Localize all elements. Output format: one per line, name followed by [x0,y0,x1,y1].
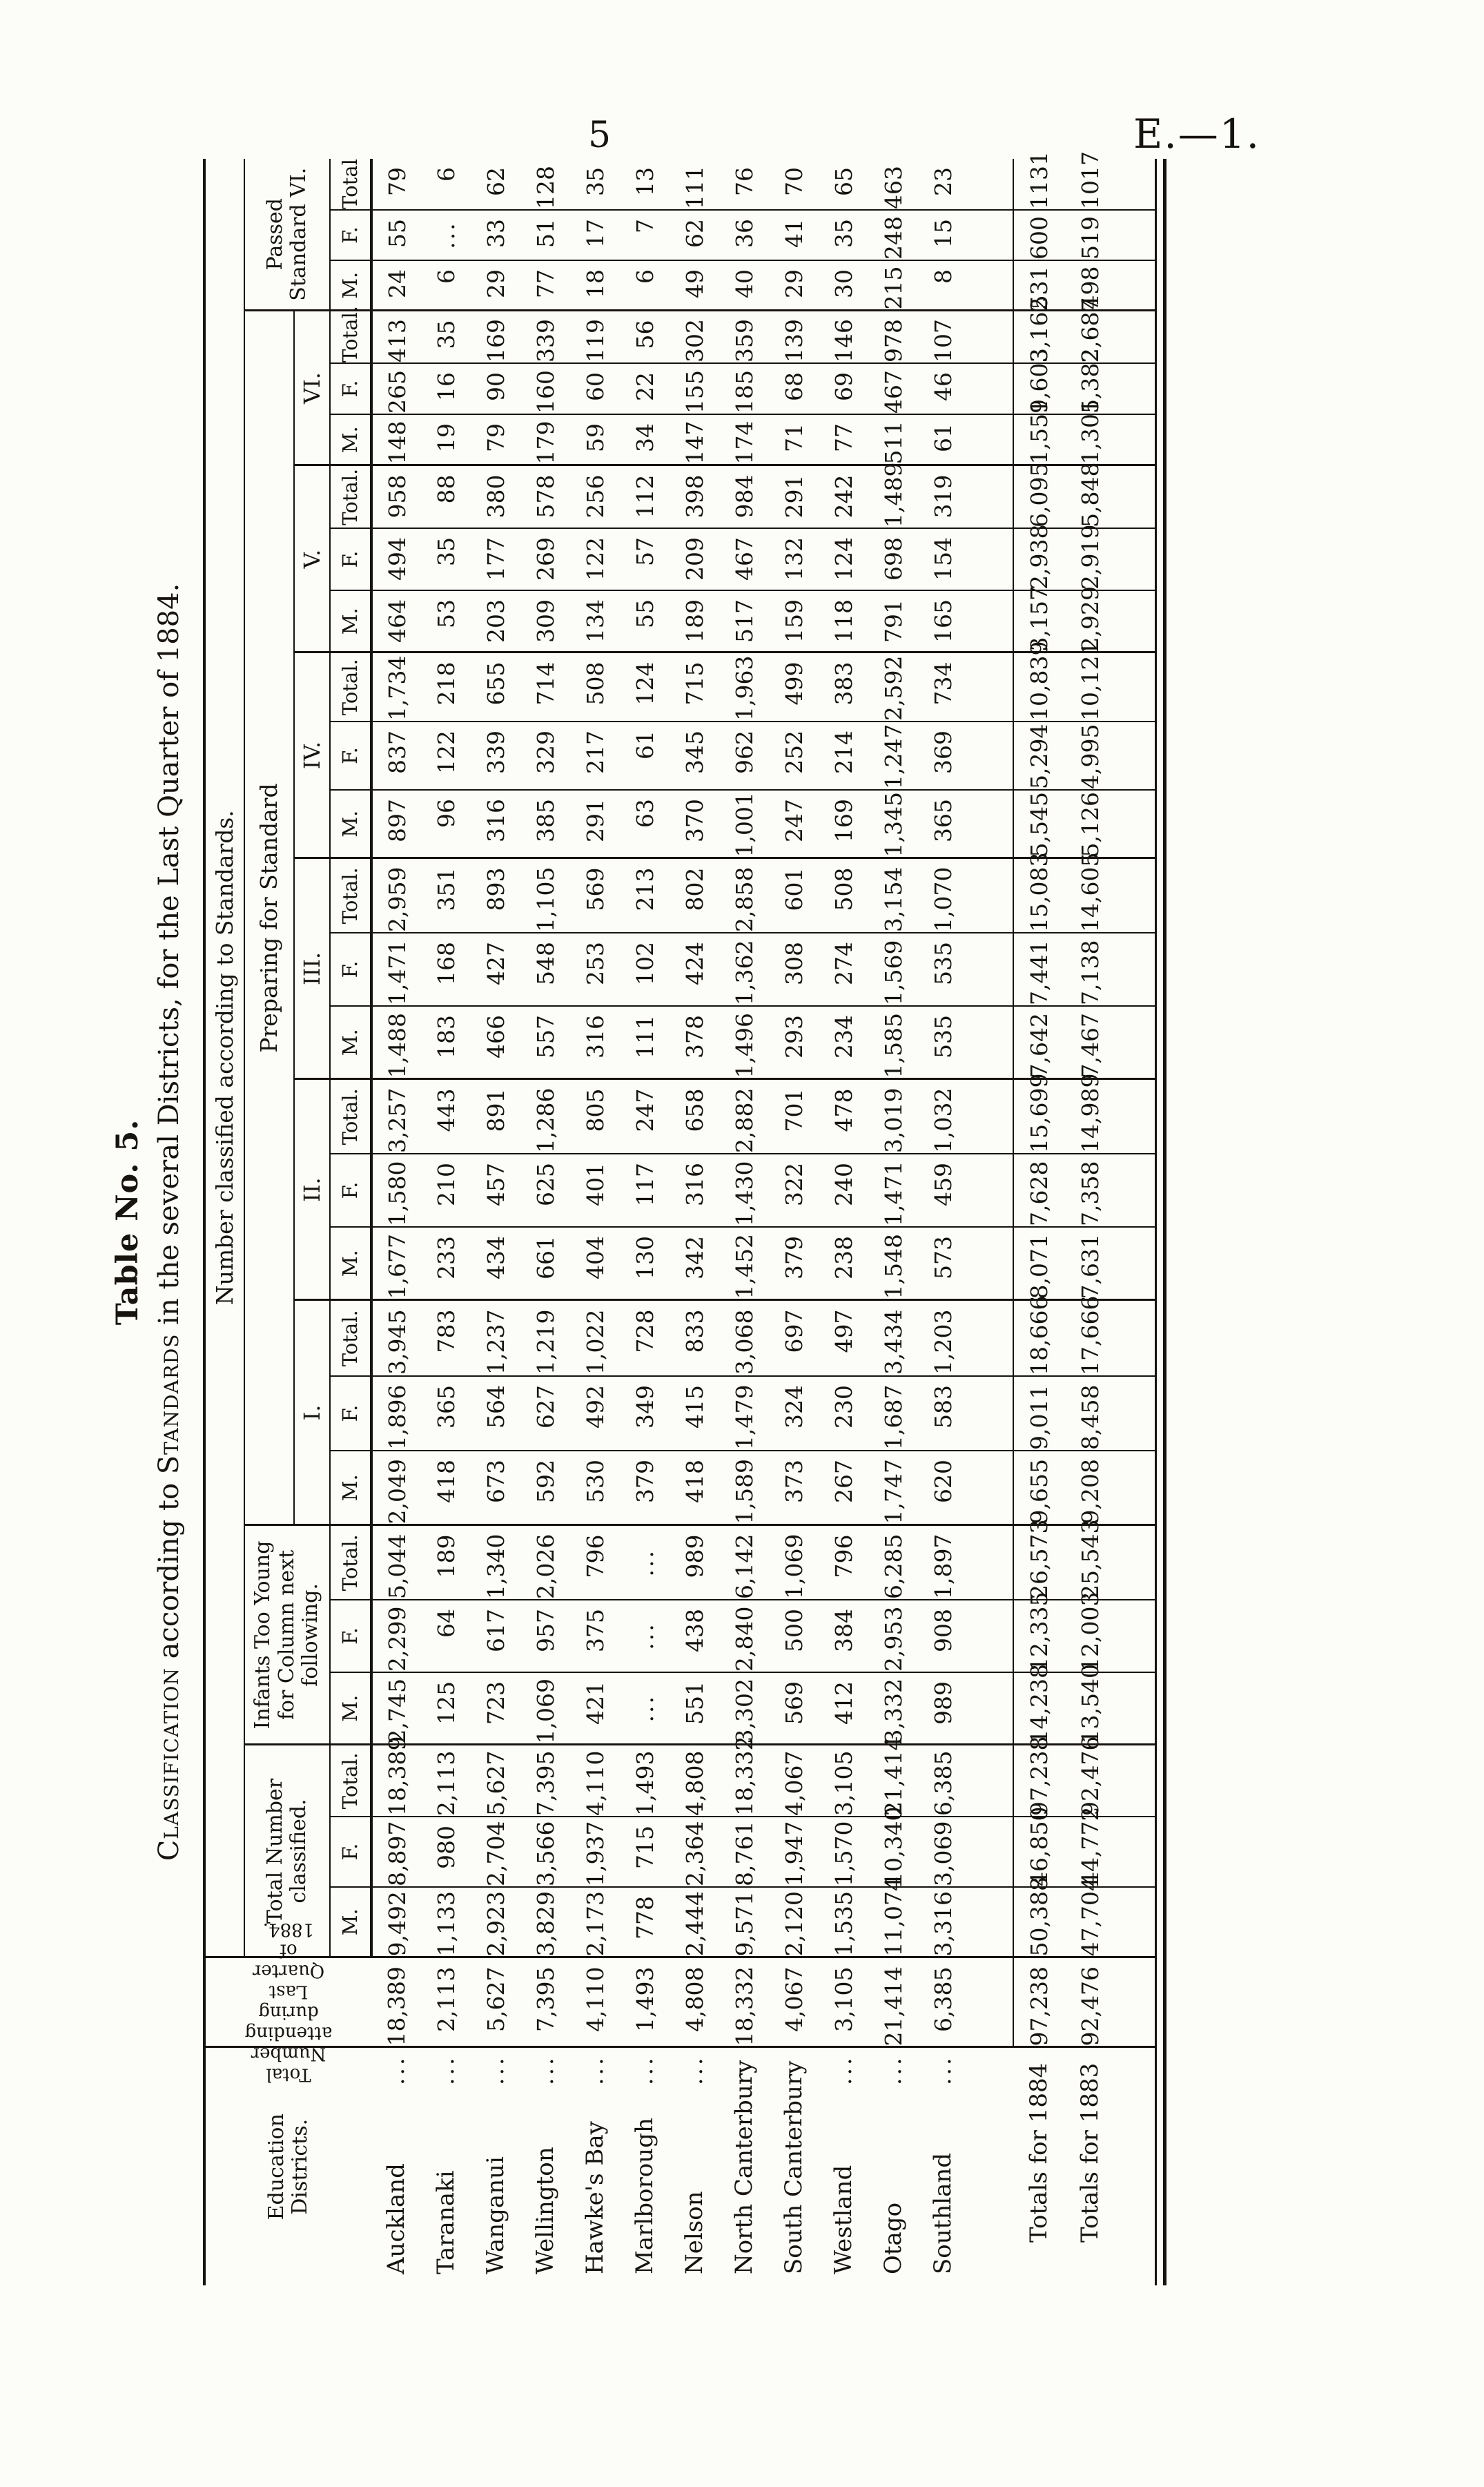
value-cell: 308 [769,933,819,1006]
spacer-cell [1115,210,1155,260]
value-cell: 500 [769,1600,819,1672]
district-name: South Canterbury [780,2061,808,2274]
header-standard-group-VI: VI. [294,311,330,465]
header-sub-total: Total. [330,311,371,363]
table-title: Classification according to Standards in… [153,159,185,2285]
value-cell: 7,631 [1064,1227,1115,1300]
value-cell: 791 [868,590,918,652]
value-cell: 339 [520,311,570,363]
value-cell: 18 [570,260,620,311]
value-cell: 6,385 [918,1745,968,1817]
value-cell: 4,110 [570,1745,620,1817]
spacer-cell [968,1154,1013,1227]
totals-label-cell: Totals for 1884 [1013,2047,1064,2285]
leader-dots: ... [681,2055,707,2085]
value-cell: 415 [670,1376,719,1451]
value-cell: 2,173 [570,1887,620,1957]
district-name: Westland [830,2165,857,2274]
value-cell: 661 [520,1227,570,1300]
header-sub-m: M. [330,1887,371,1957]
spacer-cell [1115,528,1155,590]
header-sub-m: M. [330,1672,371,1745]
header-standard-group-III: III. [294,858,330,1079]
value-cell: 805 [570,1079,620,1154]
district-row: Wanganui...5,6272,9232,7045,6277236171,3… [471,159,520,2285]
value-cell: 365 [421,1376,471,1451]
classification-table: Education Districts. Total Number attend… [203,159,1157,2285]
value-cell: 34 [620,414,670,465]
value-cell: 424 [670,933,719,1006]
value-cell: 4,067 [769,1957,819,2047]
value-cell: 9,011 [1013,1376,1064,1451]
value-cell: 1,133 [421,1887,471,1957]
value-cell: 398 [670,465,719,528]
value-cell: 1,382 [1064,363,1115,414]
spacer-cell [968,933,1013,1006]
value-cell: 2,938 [1013,528,1064,590]
value-cell: 309 [520,590,570,652]
value-cell: 79 [471,414,520,465]
value-cell: 1,032 [918,1079,968,1154]
value-cell: 242 [819,465,868,528]
value-cell: 248 [868,210,918,260]
value-cell: 1,548 [868,1227,918,1300]
header-attending-line4: 1884. [245,1919,333,1940]
value-cell: 189 [421,1525,471,1600]
value-cell: 69 [819,363,868,414]
value-cell: 478 [819,1079,868,1154]
value-cell: 2,364 [670,1817,719,1887]
value-cell: 240 [819,1154,868,1227]
header-sub-f: F. [330,528,371,590]
district-row: North Canterbury18,3329,5718,76118,3323,… [719,159,769,2285]
header-sub-f: F. [330,1376,371,1451]
value-cell: 117 [620,1154,670,1227]
value-cell: 5,545 [1013,790,1064,858]
header-sub-f: F. [330,933,371,1006]
district-row: Nelson...4,8082,4442,3644,80855143898941… [670,159,719,2285]
value-cell: 1,286 [520,1079,570,1154]
value-cell: 7,467 [1064,1006,1115,1079]
district-name: Southland [929,2153,957,2274]
value-cell: 418 [421,1451,471,1525]
value-cell: 3,302 [719,1672,769,1745]
value-cell: 50,388 [1013,1887,1064,1957]
value-cell: 1,479 [719,1376,769,1451]
value-cell: 385 [520,790,570,858]
value-cell: 21,414 [868,1745,918,1817]
spacer-cell [968,363,1013,414]
value-cell: 13 [620,159,670,210]
value-cell: 10,121 [1064,652,1115,722]
value-cell: 2,299 [371,1600,421,1672]
value-cell: 957 [520,1600,570,1672]
value-cell: 65 [819,159,868,210]
spacer-cell [1115,1600,1155,1672]
district-row: Taranaki...2,1131,1339802,11312564189418… [421,159,471,2285]
value-cell: 55 [371,210,421,260]
value-cell: 466 [471,1006,520,1079]
value-cell: 169 [819,790,868,858]
value-cell: 1,535 [819,1887,868,1957]
value-cell: 715 [620,1817,670,1887]
district-name: Hawke's Bay [581,2121,609,2274]
value-cell: 3,257 [371,1079,421,1154]
value-cell: 989 [670,1525,719,1600]
value-cell: 6 [421,159,471,210]
spacer-cell [1115,1887,1155,1957]
district-name: Wellington [531,2147,559,2274]
value-cell: 17 [570,210,620,260]
value-cell: 57 [620,528,670,590]
value-cell: 3,332 [868,1672,918,1745]
value-cell: 497 [819,1300,868,1376]
value-cell: 383 [819,652,868,722]
value-cell: 59 [570,414,620,465]
value-cell: 159 [769,590,819,652]
value-cell: 625 [520,1154,570,1227]
value-cell: 13,540 [1064,1672,1115,1745]
district-name: Totals for 1884 [1025,2063,1053,2243]
value-cell: 418 [670,1451,719,1525]
value-cell: 62 [471,159,520,210]
value-cell: 15 [918,210,968,260]
district-row: Marlborough...1,4937787151,493.........3… [620,159,670,2285]
spacer-cell [1115,1451,1155,1525]
spacer-cell [968,1300,1013,1376]
header-total-attending: Total Number attending during Last Quart… [204,1957,371,2047]
header-sub-f: F. [330,1600,371,1672]
spacer-cell [1115,414,1155,465]
value-cell: 1,022 [570,1300,620,1376]
value-cell: 401 [570,1154,620,1227]
value-cell: 1,471 [371,933,421,1006]
value-cell: 492 [570,1376,620,1451]
value-cell: 1,069 [769,1525,819,1600]
header-sub-m: M. [330,1451,371,1525]
leader-dots: ... [531,2055,558,2085]
value-cell: 499 [769,652,819,722]
district-name: Otago [879,2203,907,2274]
value-cell: 209 [670,528,719,590]
value-cell: 112 [620,465,670,528]
value-cell: 44,772 [1064,1817,1115,1887]
value-cell: 3,105 [819,1745,868,1817]
value-cell: 88 [421,465,471,528]
value-cell: 107 [918,311,968,363]
value-cell: 68 [769,363,819,414]
value-cell: 21,414 [868,1957,918,2047]
value-cell: 97,238 [1013,1957,1064,2047]
value-cell: 18,332 [719,1957,769,2047]
spacer-cell [968,790,1013,858]
spacer-cell [968,1600,1013,1672]
value-cell: 494 [371,528,421,590]
value-cell: 217 [570,722,620,790]
value-cell: 12,335 [1013,1600,1064,1672]
value-cell: 3,566 [520,1817,570,1887]
value-cell: 2,840 [719,1600,769,1672]
value-cell: 3,434 [868,1300,918,1376]
value-cell: 655 [471,652,520,722]
spacer-cell [1115,1672,1155,1745]
value-cell: 342 [670,1227,719,1300]
page-number: 5 [588,115,611,156]
value-cell: 627 [520,1376,570,1451]
value-cell: 146 [819,311,868,363]
value-cell: 796 [819,1525,868,1600]
district-name: Auckland [382,2163,410,2274]
value-cell: 833 [670,1300,719,1376]
value-cell: 139 [769,311,819,363]
header-preparing-for-standard: Preparing for Standard [244,311,294,1525]
district-cell: North Canterbury [719,2047,769,2285]
value-cell: 61 [918,414,968,465]
value-cell: 3,157 [1013,590,1064,652]
value-cell: 548 [520,933,570,1006]
value-cell: 7,138 [1064,933,1115,1006]
value-cell: 3,069 [918,1817,968,1887]
value-cell: 210 [421,1154,471,1227]
value-cell: 1,070 [918,858,968,933]
value-cell: 1,219 [520,1300,570,1376]
table-caption: Table No. 5. [110,159,145,2285]
value-cell: 1131 [1013,159,1064,210]
value-cell: 2,444 [670,1887,719,1957]
header-infants-too-young: Infants Too Young for Column next follow… [244,1525,330,1745]
value-cell: 329 [520,722,570,790]
value-cell: 168 [421,933,471,1006]
value-cell: 1,496 [719,1006,769,1079]
value-cell: 2,959 [371,858,421,933]
district-cell: Hawke's Bay... [570,2047,620,2285]
district-cell: Taranaki... [421,2047,471,2285]
value-cell: 6,142 [719,1525,769,1600]
header-sub-m: M. [330,414,371,465]
value-cell: 124 [819,528,868,590]
value-cell: 97,238 [1013,1745,1064,1817]
district-name: Marlborough [631,2118,658,2274]
header-sub-total: Total [330,159,371,210]
value-cell: 183 [421,1006,471,1079]
header-sub-f: F. [330,210,371,260]
value-cell: 2,929 [1064,590,1115,652]
value-cell: 427 [471,933,520,1006]
value-cell: 293 [769,1006,819,1079]
district-name: North Canterbury [730,2060,758,2274]
value-cell: 9,492 [371,1887,421,1957]
value-cell: 701 [769,1079,819,1154]
value-cell: 35 [570,159,620,210]
value-cell: 1,589 [719,1451,769,1525]
value-cell: ... [620,1600,670,1672]
value-cell: 734 [918,652,968,722]
value-cell: 102 [620,933,670,1006]
header-sub-m: M. [330,790,371,858]
header-sub-m: M. [330,1006,371,1079]
leader-dots: ... [382,2055,409,2085]
value-cell: 19 [421,414,471,465]
value-cell: 185 [719,363,769,414]
spacer-cell [968,159,1013,210]
header-sub-total: Total. [330,1525,371,1600]
table-bottom-rule [1163,159,1166,2285]
value-cell: 467 [868,363,918,414]
spacer-row [968,159,1013,2285]
header-standard-group-IV: IV. [294,652,330,858]
value-cell: 26,573 [1013,1525,1064,1600]
spacer-cell [1115,1376,1155,1451]
value-cell: 6,095 [1013,465,1064,528]
district-row: South Canterbury4,0672,1201,9474,0675695… [769,159,819,2285]
value-cell: 412 [819,1672,868,1745]
value-cell: 122 [421,722,471,790]
value-cell: 60 [570,363,620,414]
district-row: Auckland...18,3899,4928,89718,3892,7452,… [371,159,421,2285]
spacer-cell [1115,1957,1155,2047]
value-cell: 92,476 [1064,1957,1115,2047]
value-cell: 978 [868,311,918,363]
header-passed-standard-vi: Passed Standard VI. [244,159,330,311]
district-cell: Nelson... [670,2047,719,2285]
value-cell: 90 [471,363,520,414]
value-cell: 5,294 [1013,722,1064,790]
value-cell: 10,340 [868,1817,918,1887]
spacer-cell [968,414,1013,465]
value-cell: 698 [868,528,918,590]
value-cell: 1,677 [371,1227,421,1300]
value-cell: 63 [620,790,670,858]
value-cell: 1,734 [371,652,421,722]
value-cell: 413 [371,311,421,363]
spacer-cell [968,1525,1013,1600]
value-cell: 122 [570,528,620,590]
value-cell: 30 [819,260,868,311]
value-cell: 247 [620,1079,670,1154]
value-cell: 3,019 [868,1079,918,1154]
value-cell: 2,592 [868,652,918,722]
value-cell: 8,761 [719,1817,769,1887]
value-cell: 11,074 [868,1887,918,1957]
value-cell: 723 [471,1672,520,1745]
header-sub-total: Total. [330,465,371,528]
value-cell: 457 [471,1154,520,1227]
value-cell: 1,345 [868,790,918,858]
value-cell: 5,627 [471,1957,520,2047]
value-cell: 36 [719,210,769,260]
header-districts-line1: Education [265,2053,289,2282]
value-cell: 1,747 [868,1451,918,1525]
value-cell: 714 [520,652,570,722]
value-cell: 130 [620,1227,670,1300]
value-cell: 802 [670,858,719,933]
header-attending-line2: attending during [245,2002,333,2044]
leader-dots: ... [879,2055,906,2085]
leader-dots: ... [929,2055,956,2085]
value-cell: 203 [471,590,520,652]
value-cell: 1,305 [1064,414,1115,465]
leader-dots: ... [482,2055,509,2085]
value-cell: 569 [570,858,620,933]
header-districts-line2: Districts. [289,2053,313,2282]
value-cell: 92,476 [1064,1745,1115,1817]
value-cell: 778 [620,1887,670,1957]
value-cell: 269 [520,528,570,590]
value-cell: 531 [1013,260,1064,311]
value-cell: 77 [819,414,868,465]
value-cell: 7,395 [520,1957,570,2047]
spacer-cell [1115,1300,1155,1376]
value-cell: 6,385 [918,1957,968,2047]
value-cell: 215 [868,260,918,311]
value-cell: 7,441 [1013,933,1064,1006]
value-cell: 2,687 [1064,311,1115,363]
value-cell: 837 [371,722,421,790]
value-cell: 132 [769,528,819,590]
value-cell: 8,897 [371,1817,421,1887]
value-cell: 1,069 [520,1672,570,1745]
value-cell: 1,580 [371,1154,421,1227]
value-cell: 1,493 [620,1745,670,1817]
value-cell: 174 [719,414,769,465]
title-word-standards: Standards [153,1334,185,1475]
value-cell: 247 [769,790,819,858]
value-cell: 46,850 [1013,1817,1064,1887]
spacer-cell [1115,858,1155,933]
spacer-cell [1115,933,1155,1006]
value-cell: 316 [670,1154,719,1227]
district-cell: Otago... [868,2047,918,2285]
spacer-cell [1115,1525,1155,1600]
header-standard-group-I: I. [294,1300,330,1525]
district-cell: Southland... [918,2047,968,2285]
value-cell: 1,585 [868,1006,918,1079]
value-cell: 56 [620,311,670,363]
value-cell: 230 [819,1376,868,1451]
value-cell: 14,605 [1064,858,1115,933]
value-cell: 165 [918,590,968,652]
spacer-cell [1115,1154,1155,1227]
value-cell: 891 [471,1079,520,1154]
value-cell: 125 [421,1672,471,1745]
value-cell: 265 [371,363,421,414]
district-cell: South Canterbury [769,2047,819,2285]
value-cell: 2,049 [371,1451,421,1525]
value-cell: 2,923 [471,1887,520,1957]
leader-dots: ... [581,2055,608,2085]
value-cell: 2,953 [868,1600,918,1672]
value-cell: 14,238 [1013,1672,1064,1745]
value-cell: 29 [471,260,520,311]
spacer-cell [968,652,1013,722]
value-cell: 218 [421,652,471,722]
value-cell: 617 [471,1600,520,1672]
value-cell: 35 [819,210,868,260]
value-cell: 291 [570,790,620,858]
value-cell: 578 [520,465,570,528]
value-cell: 23 [918,159,968,210]
value-cell: 980 [421,1817,471,1887]
value-cell: 274 [819,933,868,1006]
value-cell: 989 [918,1672,968,1745]
value-cell: 535 [918,933,968,1006]
value-cell: 119 [570,311,620,363]
value-cell: 62 [670,210,719,260]
value-cell: 535 [918,1006,968,1079]
value-cell: ... [421,210,471,260]
value-cell: 1,559 [1013,414,1064,465]
value-cell: 728 [620,1300,670,1376]
